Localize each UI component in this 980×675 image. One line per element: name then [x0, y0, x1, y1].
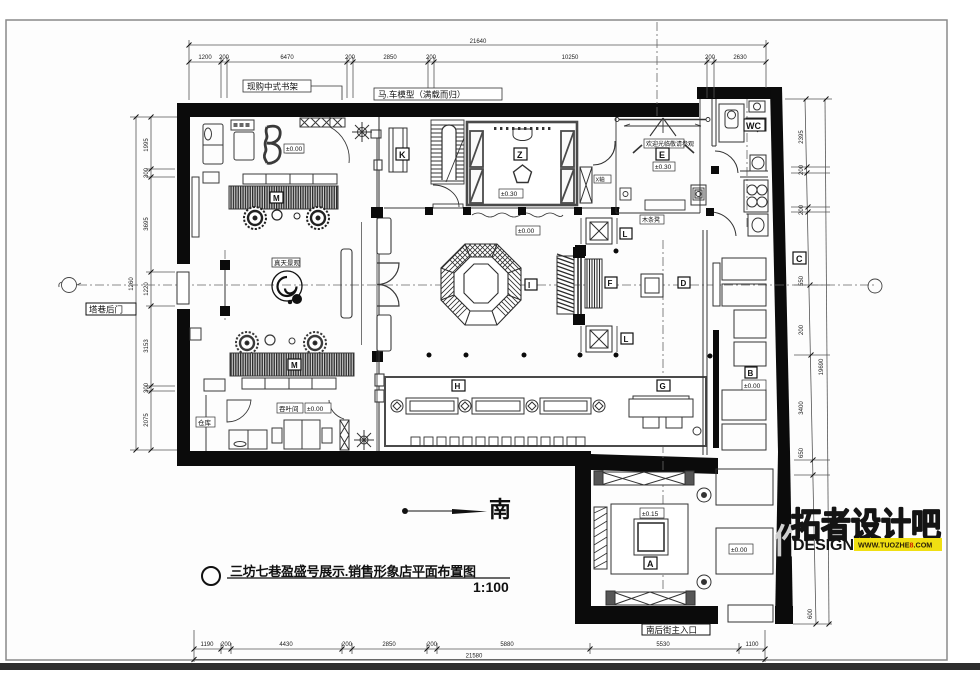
svg-text:吞叶间: 吞叶间: [279, 404, 299, 413]
svg-text:200: 200: [219, 55, 230, 61]
svg-text:A: A: [647, 559, 654, 569]
svg-text:550: 550: [799, 275, 805, 286]
svg-text:C: C: [796, 254, 803, 264]
svg-text:F: F: [608, 279, 613, 288]
svg-text:仓库: 仓库: [198, 418, 212, 427]
svg-text:G: G: [660, 382, 666, 391]
svg-text:I: I: [528, 281, 530, 290]
svg-text:欢迎光临敬请参观: 欢迎光临敬请参观: [646, 140, 694, 148]
svg-text:B: B: [748, 369, 754, 378]
svg-text:真天景观: 真天景观: [274, 258, 301, 267]
svg-text:21580: 21580: [466, 654, 483, 660]
svg-text:200: 200: [799, 324, 805, 335]
svg-text:600: 600: [808, 608, 814, 619]
svg-text:200: 200: [426, 55, 437, 61]
svg-text:E: E: [659, 150, 665, 160]
svg-text:200: 200: [345, 55, 356, 61]
svg-text:±0.00: ±0.00: [744, 383, 761, 390]
svg-text:1260: 1260: [129, 277, 135, 291]
svg-text:3400: 3400: [799, 401, 805, 415]
svg-text:L: L: [624, 335, 629, 344]
svg-text:三坊七巷盈盛号展示.销售形象店平面布置图: 三坊七巷盈盛号展示.销售形象店平面布置图: [230, 564, 476, 579]
svg-text:±0.30: ±0.30: [655, 164, 672, 171]
svg-text:3695: 3695: [144, 217, 150, 231]
svg-text:D: D: [681, 279, 687, 288]
svg-text:±0.30: ±0.30: [501, 191, 518, 198]
svg-text:南后街主入口: 南后街主入口: [646, 625, 697, 635]
svg-text:X轴: X轴: [596, 176, 606, 184]
svg-text:2850: 2850: [382, 642, 396, 648]
svg-text:19690: 19690: [819, 358, 825, 375]
svg-text:1190: 1190: [201, 642, 215, 648]
svg-text:200: 200: [705, 55, 716, 61]
svg-text:±0.00: ±0.00: [307, 406, 324, 413]
svg-text:1100: 1100: [746, 642, 760, 648]
svg-text:1220: 1220: [144, 282, 150, 296]
svg-text:M: M: [273, 194, 280, 203]
svg-text:南: 南: [489, 497, 511, 522]
svg-text:L: L: [623, 230, 628, 239]
svg-text:1995: 1995: [144, 138, 150, 152]
svg-text:±0.00: ±0.00: [518, 228, 535, 235]
svg-text:2630: 2630: [733, 55, 747, 61]
svg-text:Z: Z: [517, 150, 523, 160]
svg-text:1:100: 1:100: [473, 579, 509, 595]
svg-text:2395: 2395: [799, 130, 805, 144]
svg-text:±0.00: ±0.00: [286, 146, 303, 153]
svg-text:1200: 1200: [198, 55, 212, 61]
svg-text:6470: 6470: [280, 55, 294, 61]
svg-text:5880: 5880: [500, 642, 514, 648]
svg-text:WC: WC: [746, 121, 761, 131]
svg-text:±0.15: ±0.15: [642, 511, 659, 518]
svg-text:200: 200: [799, 204, 805, 215]
svg-text:300: 300: [144, 167, 150, 178]
svg-text:2850: 2850: [383, 55, 397, 61]
svg-text:10250: 10250: [562, 55, 579, 61]
svg-text:650: 650: [799, 447, 805, 458]
svg-text:DESIGN: DESIGN: [793, 537, 854, 554]
svg-text:WWW.TUOZHE8.COM: WWW.TUOZHE8.COM: [858, 541, 932, 550]
svg-text:4430: 4430: [279, 642, 293, 648]
svg-text:现购中式书架: 现购中式书架: [247, 82, 299, 92]
svg-text:木条凳: 木条凳: [642, 216, 660, 224]
svg-text:21640: 21640: [470, 39, 487, 45]
svg-text:M: M: [291, 361, 298, 370]
svg-text:马.车模型（满载而归）: 马.车模型（满载而归）: [378, 90, 465, 100]
svg-text:塔巷后门: 塔巷后门: [89, 305, 123, 315]
svg-text:3153: 3153: [144, 339, 150, 353]
svg-text:200: 200: [799, 164, 805, 175]
svg-text:5530: 5530: [656, 642, 670, 648]
svg-text:H: H: [455, 382, 461, 391]
svg-text:K: K: [399, 150, 406, 160]
svg-text:±0.00: ±0.00: [731, 547, 748, 554]
svg-text:2075: 2075: [144, 413, 150, 427]
